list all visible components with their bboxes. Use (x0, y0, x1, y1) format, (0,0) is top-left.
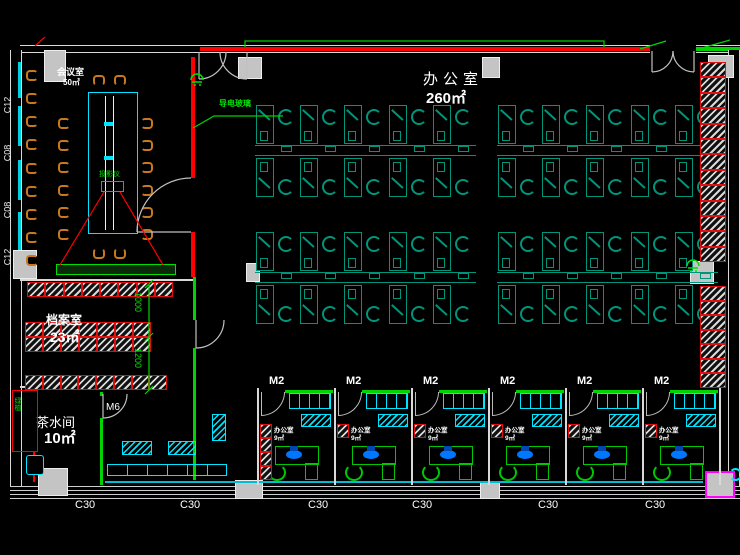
computer (671, 450, 687, 459)
window-label-c30: C30 (180, 500, 200, 511)
desk-return (690, 463, 703, 480)
coffee-table (378, 414, 408, 427)
sofa (597, 393, 639, 409)
monitor (523, 273, 534, 279)
small-office-label: 办公室 9㎡ (582, 427, 602, 443)
shelf-cell (700, 247, 726, 262)
small-office-label: 办公室 9㎡ (428, 427, 448, 443)
office-shelf (337, 424, 349, 438)
office-chair (653, 179, 669, 195)
desk-unit (585, 104, 629, 145)
monitor (414, 146, 425, 152)
shelf-cell (645, 424, 657, 438)
monitor (700, 273, 711, 279)
double-door-left-leaf (199, 52, 226, 79)
top-right-door-right-leaf (673, 51, 694, 72)
top-door-gap (650, 44, 696, 54)
shelf-cell (700, 170, 726, 185)
sofa (520, 393, 562, 409)
chair (26, 70, 38, 81)
desk-unit (497, 104, 541, 145)
desk-unit (541, 104, 585, 145)
chair (141, 185, 153, 196)
desk-phone (393, 131, 401, 141)
office-chair (411, 179, 427, 195)
cubicle-group (497, 231, 718, 324)
window-label-c12: C12 (2, 97, 12, 114)
computer-monitor (521, 446, 529, 451)
desk-return (459, 463, 472, 480)
door-label-m2: M2 (423, 375, 438, 387)
monitor (281, 273, 292, 279)
door-arc (261, 392, 285, 416)
desk-return (536, 463, 549, 480)
desk-unit (541, 156, 585, 197)
shelf-cell (115, 337, 133, 352)
small-office: M2 办公室 9㎡ (565, 388, 642, 485)
shelf-cell (82, 282, 100, 297)
tea-cabinet-label: 绿植 (14, 397, 21, 411)
shelf-cell (45, 282, 63, 297)
desk-unit (432, 283, 476, 324)
small-office: M2 办公室 9㎡ (334, 388, 411, 485)
sofa (366, 393, 408, 409)
desk-phone (546, 258, 554, 268)
task-chair (576, 464, 594, 481)
desk-unit (497, 231, 541, 272)
office-chair (455, 306, 471, 322)
desk-unit (388, 156, 432, 197)
projector-label: 投影仪 (99, 171, 120, 178)
desk-unit (388, 104, 432, 145)
chair (58, 162, 70, 173)
chair (114, 75, 126, 86)
monitor (325, 146, 336, 152)
archive-room-label: 档案室 (46, 314, 82, 326)
monitor (567, 146, 578, 152)
tea-room-area: 10㎡ (44, 431, 76, 446)
desk-phone (260, 162, 268, 172)
partition-green-lower (193, 348, 196, 480)
shelf-cell (79, 337, 97, 352)
desk-phone (437, 289, 445, 299)
door-label-m2: M2 (269, 375, 284, 387)
top-wall-red-glass (200, 47, 650, 51)
shelf-cell (43, 375, 61, 390)
tea-room-green-wall2 (100, 418, 103, 485)
archive-shelf-row (25, 375, 167, 390)
office-chair (520, 179, 536, 195)
office-shelf (414, 424, 426, 438)
desk-phone (590, 289, 598, 299)
conductive-glass-label: 导电玻璃 (219, 100, 251, 108)
partition-divider (255, 145, 476, 156)
desk-unit (255, 283, 299, 324)
computer (440, 450, 456, 459)
office-chair (366, 179, 382, 195)
chair (93, 248, 105, 259)
desk-phone (304, 131, 312, 141)
shelf-cell (97, 322, 115, 337)
task-chair (345, 464, 363, 481)
desk-unit (432, 231, 476, 272)
desk-unit (299, 283, 343, 324)
window-label-c30: C30 (412, 500, 432, 511)
office-chair (411, 109, 427, 125)
desk-unit (255, 156, 299, 197)
desk-phone (393, 258, 401, 268)
chair (141, 207, 153, 218)
desk-return (613, 463, 626, 480)
desk-unit (541, 231, 585, 272)
door-arc (415, 392, 439, 416)
table-tick (104, 122, 113, 126)
monitor (523, 146, 534, 152)
office-chair (411, 236, 427, 252)
projector (101, 181, 124, 192)
desk-phone (679, 289, 687, 299)
shelf-cell (114, 375, 132, 390)
desk-phone (502, 289, 510, 299)
desk-unit (585, 156, 629, 197)
chair (58, 140, 70, 151)
column (482, 57, 500, 78)
office-chair (411, 306, 427, 322)
shelf-cell (96, 375, 114, 390)
computer (363, 450, 379, 459)
monitor (458, 273, 469, 279)
desk-phone (635, 162, 643, 172)
desk-unit (255, 104, 299, 145)
partition-divider (255, 272, 476, 283)
desk-phone (348, 289, 356, 299)
monitor (369, 146, 380, 152)
shelf-cell (491, 424, 503, 438)
small-office: M2 办公室 9㎡ (488, 388, 565, 485)
office-chair (520, 306, 536, 322)
computer (286, 450, 302, 459)
coffee-table (301, 414, 331, 427)
shelf-cell (700, 185, 726, 200)
window-label-c30: C30 (75, 500, 95, 511)
office-chair (455, 109, 471, 125)
office-chair (278, 236, 294, 252)
desk-phone (546, 289, 554, 299)
desk-unit (585, 231, 629, 272)
task-chair (653, 464, 671, 481)
desk-phone (590, 131, 598, 141)
desk-unit (388, 283, 432, 324)
shelf-cell (115, 322, 133, 337)
partition-divider (497, 272, 718, 283)
bench (107, 464, 227, 476)
top-right-door-left-leaf (652, 51, 673, 72)
office-chair (455, 236, 471, 252)
side-table (212, 414, 226, 441)
shelf-cell (337, 424, 349, 438)
desk-unit (432, 156, 476, 197)
chair (26, 186, 38, 197)
desk-phone (437, 162, 445, 172)
monitor (458, 146, 469, 152)
desk-phone (304, 162, 312, 172)
chair (26, 255, 38, 266)
office-chair (366, 236, 382, 252)
chair (26, 209, 38, 220)
office-chair (653, 306, 669, 322)
desk-phone (502, 162, 510, 172)
door-arc (646, 392, 670, 416)
office-shelf (645, 424, 657, 438)
desk-unit (541, 283, 585, 324)
office-chair (564, 236, 580, 252)
small-office-label: 办公室 9㎡ (659, 427, 679, 443)
shelf-cell (27, 282, 45, 297)
door-label-m2: M2 (346, 375, 361, 387)
office-chair (322, 236, 338, 252)
door-label-m2: M2 (577, 375, 592, 387)
shelf-cell (25, 337, 43, 352)
desk-unit (299, 104, 343, 145)
bottom-wall (10, 486, 740, 499)
dimension-1000: 1000 (133, 292, 142, 312)
desk-phone (348, 131, 356, 141)
desk-phone (260, 258, 268, 268)
shelf-cell (700, 216, 726, 231)
chair (93, 75, 105, 86)
shelf-cell (700, 62, 726, 77)
window-glass (18, 62, 21, 98)
archive-top-wall (20, 279, 193, 281)
shelf-cell (700, 286, 726, 301)
small-office: M2 办公室 9㎡ (642, 388, 719, 485)
desk-phone (546, 162, 554, 172)
coffee-table (122, 441, 152, 455)
office-chair (653, 236, 669, 252)
chair (58, 229, 70, 240)
chair (58, 185, 70, 196)
office-chair (366, 109, 382, 125)
coffee-table (168, 441, 196, 455)
small-office: M2 办公室 9㎡ (411, 388, 488, 485)
desk-phone (635, 131, 643, 141)
shelf-cell (97, 337, 115, 352)
shelf-cell (260, 466, 272, 480)
office-chair (520, 236, 536, 252)
right-shelf-strip-lower (700, 286, 726, 388)
chair (141, 140, 153, 151)
shelf-cell (25, 322, 43, 337)
office-chair (653, 109, 669, 125)
monitor (369, 273, 380, 279)
monitor (325, 273, 336, 279)
office-chair (564, 109, 580, 125)
shelf-cell (700, 124, 726, 139)
shelf-cell (25, 375, 43, 390)
window-label-c12b: C12 (2, 249, 12, 266)
column (238, 57, 262, 79)
desk-phone (393, 289, 401, 299)
coffee-table (532, 414, 562, 427)
sofa (289, 393, 331, 409)
shelf-cell (700, 108, 726, 123)
shelf-cell (700, 373, 726, 388)
archive-shelf-row (25, 322, 151, 337)
small-office-row: M2 办公室 9㎡ M2 (257, 388, 721, 485)
desk-phone (260, 289, 268, 299)
shelf-cell (700, 344, 726, 359)
table-left-chairs (58, 118, 70, 240)
office-chair (322, 109, 338, 125)
desk-phone (590, 258, 598, 268)
chair (58, 207, 70, 218)
desk-unit (343, 104, 387, 145)
office-chair (278, 306, 294, 322)
shelf-cell (149, 375, 167, 390)
monitor (656, 273, 667, 279)
archive-room-area: 23㎡ (50, 330, 80, 344)
office-chair (564, 306, 580, 322)
shelf-cell (61, 375, 79, 390)
window-label-c08b: C08 (2, 202, 12, 219)
archive-shelf-row (27, 282, 173, 297)
desk-unit (343, 156, 387, 197)
desk-phone (348, 258, 356, 268)
shelf-cell (700, 139, 726, 154)
desk-unit (388, 231, 432, 272)
computer-monitor (290, 446, 298, 451)
partition-green-upper (193, 277, 196, 320)
window-label-c30: C30 (308, 500, 328, 511)
task-chair (499, 464, 517, 481)
office-shelf (491, 424, 503, 438)
desk-phone (590, 162, 598, 172)
meeting-room-area: 50㎡ (63, 79, 80, 87)
cad-floorplan: C12 C08 C08 C12 C30 C30 C30 C30 C30 C30 … (0, 0, 740, 555)
window-label-c08: C08 (2, 145, 12, 162)
door-arc (492, 392, 516, 416)
shelf-cell (260, 452, 272, 466)
office-chair (608, 109, 624, 125)
meeting-room-label: 会议室 (57, 68, 84, 77)
shelf-cell (568, 424, 580, 438)
window-glass (18, 106, 21, 146)
small-office-label: 办公室 9㎡ (505, 427, 525, 443)
window-glass (18, 160, 21, 200)
desk-unit (432, 104, 476, 145)
small-office: M2 办公室 9㎡ (257, 388, 334, 485)
window-glass (18, 212, 21, 252)
desk-unit (497, 156, 541, 197)
sofa (674, 393, 716, 409)
desk-return (382, 463, 395, 480)
desk-unit (630, 283, 674, 324)
computer (594, 450, 610, 459)
shelf-cell (700, 359, 726, 374)
shelf-cell (700, 154, 726, 169)
coffee-table (455, 414, 485, 427)
desk-phone (437, 131, 445, 141)
desk-unit (255, 231, 299, 272)
desk-unit (630, 156, 674, 197)
office-chair (608, 306, 624, 322)
shelf-cell (78, 375, 96, 390)
computer-monitor (444, 446, 452, 451)
chair (26, 163, 38, 174)
task-chair (422, 464, 440, 481)
chair (114, 248, 126, 259)
window-label-c30: C30 (538, 500, 558, 511)
shelf-cell (132, 375, 150, 390)
coffee-table (686, 414, 716, 427)
computer (517, 450, 533, 459)
desk-phone (502, 258, 510, 268)
chair (141, 162, 153, 173)
corridor-door (196, 320, 224, 348)
shelf-cell (64, 282, 82, 297)
office-chair (608, 236, 624, 252)
desk-phone (348, 162, 356, 172)
shelf-cell (133, 322, 151, 337)
shelf-cell (260, 438, 272, 452)
door-label-m6: M6 (106, 403, 120, 413)
shelf-cell (100, 282, 118, 297)
office-shelf (260, 424, 272, 480)
desk-phone (679, 258, 687, 268)
cubicle-group (497, 104, 718, 197)
desk-phone (679, 131, 687, 141)
partition-red-lower (191, 232, 195, 277)
computer-monitor (675, 446, 683, 451)
desk-unit (585, 283, 629, 324)
wall-chair-column (26, 70, 38, 266)
office-chair (608, 179, 624, 195)
office-chair (366, 306, 382, 322)
coffee-table (609, 414, 639, 427)
desk-phone (635, 258, 643, 268)
right-shelf-strip (700, 62, 726, 262)
office-chair (455, 179, 471, 195)
desk-unit (497, 283, 541, 324)
small-office-label: 办公室 9㎡ (274, 427, 294, 443)
chair (26, 93, 38, 104)
shelf-cell (700, 201, 726, 216)
office-chair (322, 306, 338, 322)
desk-phone (679, 162, 687, 172)
desk-phone (635, 289, 643, 299)
computer-monitor (367, 446, 375, 451)
desk-phone (260, 131, 268, 141)
monitor (567, 273, 578, 279)
shelf-cell (155, 282, 173, 297)
sofa (443, 393, 485, 409)
cubicle-group (255, 231, 476, 324)
shelf-cell (700, 330, 726, 345)
table-tick (104, 156, 113, 160)
door-label-m2: M2 (500, 375, 515, 387)
door-arc (338, 392, 362, 416)
tea-room-green-wall (100, 392, 103, 396)
office-chair (564, 179, 580, 195)
desk-unit (630, 104, 674, 145)
shelf-cell (700, 315, 726, 330)
table-right-chairs (141, 118, 153, 240)
sink-fixture (26, 455, 44, 475)
chair (58, 118, 70, 129)
partition-red-upper (191, 57, 195, 178)
chair (26, 232, 38, 243)
main-office-label: 办公室 (423, 72, 483, 87)
